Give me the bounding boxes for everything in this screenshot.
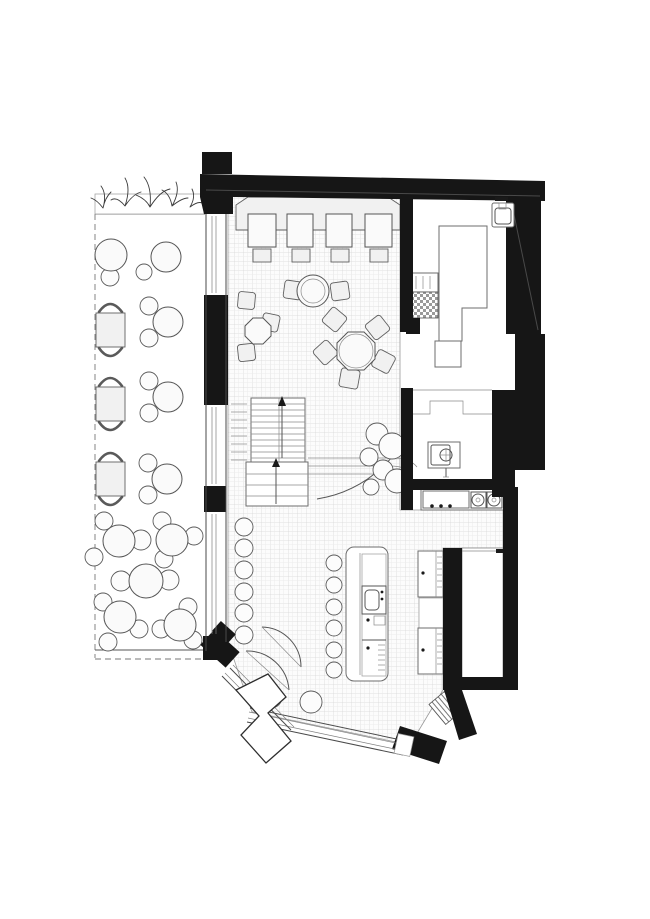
chair xyxy=(139,454,157,472)
window-stool xyxy=(235,561,253,579)
stair-upper-flight xyxy=(251,398,305,462)
chair xyxy=(99,633,117,651)
wall-kitchen-left xyxy=(400,198,413,332)
chair xyxy=(338,367,360,389)
back-room xyxy=(462,548,503,680)
window-stool xyxy=(235,604,253,622)
wall-bottom xyxy=(443,677,518,690)
chair xyxy=(140,329,158,347)
stair-lower-flight xyxy=(246,462,308,506)
plant-pot xyxy=(363,479,379,495)
wall-room-left xyxy=(401,388,413,510)
chair-arc xyxy=(99,422,122,430)
stool xyxy=(300,691,322,713)
bar-island-shape xyxy=(366,618,369,621)
kitchen-island xyxy=(439,226,487,341)
planter-box xyxy=(95,194,204,214)
banquette-table xyxy=(326,214,352,247)
octagon-table xyxy=(245,318,271,344)
appliance xyxy=(409,273,438,292)
stool xyxy=(370,249,388,262)
round-table xyxy=(153,307,183,337)
chair-arc xyxy=(99,453,122,461)
wall-counter-back xyxy=(412,479,503,490)
chair-arc xyxy=(99,378,122,386)
round-table xyxy=(95,239,127,271)
round-table xyxy=(151,242,181,272)
square-table xyxy=(96,387,125,421)
bar-stool xyxy=(326,620,342,636)
round-table xyxy=(104,601,136,633)
bar-island-shape xyxy=(362,554,386,676)
wall-units-back xyxy=(443,548,462,690)
chair xyxy=(85,548,103,566)
round-table xyxy=(164,609,196,641)
stool xyxy=(331,249,349,262)
chair xyxy=(237,343,256,362)
chair-arc xyxy=(99,348,122,356)
wall-nib xyxy=(406,318,420,334)
stool xyxy=(253,249,271,262)
kitchen-counters xyxy=(409,226,487,367)
wall-right-mid xyxy=(515,334,545,470)
bar-stool xyxy=(326,599,342,615)
small-room xyxy=(413,390,492,477)
chair xyxy=(136,264,152,280)
bar-island-shape xyxy=(366,646,369,649)
knob-icon xyxy=(430,504,434,508)
espresso-machine xyxy=(423,491,469,508)
chair xyxy=(140,297,158,315)
bar-stool xyxy=(326,662,342,678)
chair xyxy=(140,404,158,422)
wall-right-lower xyxy=(503,487,518,690)
banquette-table xyxy=(365,214,392,247)
window-stool xyxy=(235,583,253,601)
espresso-counter xyxy=(421,489,504,510)
chair xyxy=(140,372,158,390)
bar-island-shape xyxy=(381,598,384,601)
chair xyxy=(237,291,255,309)
window-stool xyxy=(235,518,253,536)
round-table xyxy=(103,525,135,557)
round-table xyxy=(153,382,183,412)
knob-icon xyxy=(448,504,452,508)
ceiling-step-line xyxy=(413,401,492,414)
square-table xyxy=(96,313,125,347)
round-table xyxy=(152,464,182,494)
wall-pier xyxy=(202,152,232,174)
window-pier xyxy=(204,295,228,405)
plan-root xyxy=(85,152,545,764)
terrace-furniture xyxy=(85,239,203,651)
banquette-table xyxy=(248,214,276,247)
round-table xyxy=(129,564,163,598)
chair xyxy=(111,571,131,591)
tiny-label-bar xyxy=(495,197,508,201)
square-table xyxy=(96,462,125,496)
range-icon xyxy=(409,292,438,318)
right-units-shape xyxy=(496,549,503,553)
round-table xyxy=(297,275,329,307)
bar-stool xyxy=(326,642,342,658)
window-pier xyxy=(204,486,226,512)
round-table xyxy=(156,524,188,556)
chair xyxy=(139,486,157,504)
knob-icon xyxy=(439,504,443,508)
handle-icon xyxy=(421,571,424,574)
bar-island-shape xyxy=(381,591,384,594)
floor-plan-page xyxy=(0,0,650,919)
window-stool xyxy=(235,539,253,557)
bar-stool xyxy=(326,555,342,571)
octagon-table-large xyxy=(337,332,375,370)
bar-stool xyxy=(326,577,342,593)
floor-plan-svg xyxy=(0,0,650,919)
window-stool xyxy=(235,626,253,644)
chair-arc xyxy=(99,497,122,505)
fridge-unit xyxy=(418,551,443,597)
fridge-unit xyxy=(418,628,443,674)
banquette-table xyxy=(287,214,313,247)
kitchen-island-foot xyxy=(435,341,461,367)
chair-arc xyxy=(99,304,122,312)
chair xyxy=(330,281,350,301)
counter-gap xyxy=(419,598,443,628)
handle-icon xyxy=(421,648,424,651)
stool xyxy=(292,249,310,262)
